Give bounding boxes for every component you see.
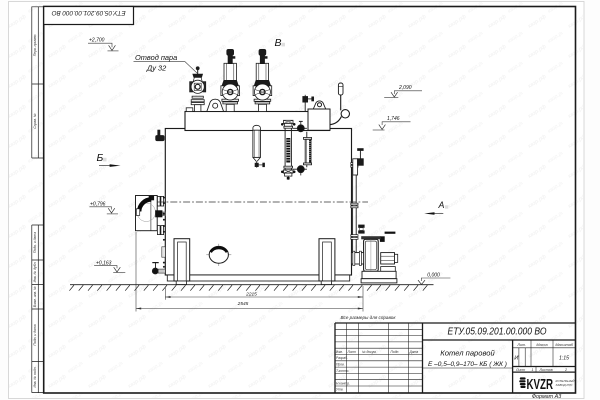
- svg-text:KVZR: KVZR: [527, 377, 554, 393]
- svg-text:Листов: Листов: [539, 368, 553, 372]
- svg-text:0,000: 0,000: [427, 273, 440, 279]
- svg-text:2,090: 2,090: [398, 85, 412, 91]
- svg-text:Справ. №: Справ. №: [33, 113, 37, 129]
- svg-text:2545: 2545: [237, 301, 249, 307]
- svg-text:2: 2: [564, 368, 567, 372]
- svg-text:Т.контр.: Т.контр.: [336, 369, 349, 373]
- svg-text:В: В: [275, 37, 282, 49]
- svg-text:ЕТУ.05.09.201.00.000 ВО: ЕТУ.05.09.201.00.000 ВО: [448, 327, 547, 338]
- svg-text:Инв. № дубл.: Инв. № дубл.: [33, 262, 37, 283]
- svg-text:Взам. инв. №: Взам. инв. №: [33, 286, 37, 307]
- svg-text:Ду 32: Ду 32: [146, 64, 166, 73]
- svg-text:Подп. и дата: Подп. и дата: [33, 232, 37, 253]
- svg-text:Разраб.: Разраб.: [336, 356, 348, 360]
- svg-text:1:15: 1:15: [559, 356, 569, 362]
- svg-text:Б: Б: [97, 152, 104, 164]
- svg-text:Пров.: Пров.: [336, 363, 345, 367]
- svg-text:Масштаб: Масштаб: [555, 343, 574, 347]
- svg-text:№ докум.: № докум.: [362, 350, 377, 354]
- svg-text:+0,796: +0,796: [90, 201, 106, 207]
- svg-text:Лист: Лист: [347, 350, 357, 354]
- svg-text:Подп.: Подп.: [391, 350, 400, 354]
- svg-text:Перв. примен.: Перв. примен.: [33, 34, 37, 57]
- svg-text:Лит.: Лит.: [516, 343, 526, 347]
- svg-text:Изм.: Изм.: [336, 350, 343, 354]
- svg-text:Отвод пара: Отвод пара: [135, 53, 177, 62]
- svg-text:Дата: Дата: [409, 350, 419, 354]
- svg-text:Формат А3: Формат А3: [532, 394, 562, 400]
- svg-text:А: А: [438, 200, 445, 210]
- svg-text:КОТЕЛЬНЫЙ: КОТЕЛЬНЫЙ: [556, 379, 576, 383]
- svg-text:Е –0,5–0,9–170– КБ ( ЖК ): Е –0,5–0,9–170– КБ ( ЖК ): [428, 361, 507, 368]
- svg-text:2215: 2215: [245, 291, 257, 297]
- svg-text:Подп. и дата: Подп. и дата: [33, 324, 37, 345]
- svg-text:Н.контр.: Н.контр.: [336, 381, 350, 385]
- svg-text:ЕТУ.05.09.201.00.000 ВО: ЕТУ.05.09.201.00.000 ВО: [51, 9, 125, 16]
- svg-text:Масса: Масса: [536, 343, 547, 347]
- svg-text:1,746: 1,746: [387, 116, 400, 122]
- svg-text:1: 1: [532, 368, 534, 372]
- svg-text:Все размеры для справок: Все размеры для справок: [340, 315, 396, 320]
- svg-text:Инв. № подл.: Инв. № подл.: [33, 366, 37, 387]
- svg-text:+2,700: +2,700: [89, 38, 105, 44]
- svg-text:Лист: Лист: [515, 368, 525, 372]
- svg-text:Котел паровой: Котел паровой: [440, 349, 495, 358]
- svg-text:Утв.: Утв.: [336, 388, 344, 392]
- svg-text:ЗАВОД РУС: ЗАВОД РУС: [556, 383, 574, 387]
